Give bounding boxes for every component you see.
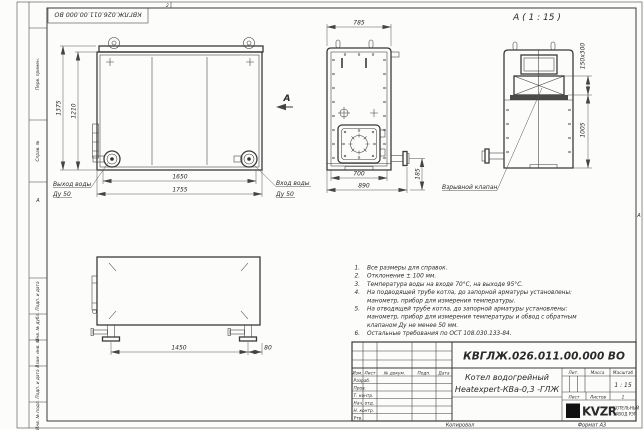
detail-view-a: А ( 1 : 15 ) 150х300 1005 Взрывной клапа… <box>442 13 592 191</box>
format-label: Формат А3 <box>578 423 606 429</box>
front-view: 1375 1210 1650 1755 Выход воды Ду 50 Вхо… <box>52 38 311 199</box>
scale-value: 1 : 15 <box>614 382 631 389</box>
note-num: 6. <box>354 331 360 337</box>
note-text: манометр, прибор для измерения температу… <box>367 298 516 304</box>
dim-valve: 150х300 <box>580 43 587 70</box>
company-logo: KVZR КОТЕЛЬНЫЙ ЗАВОД РЭП <box>566 404 639 419</box>
note-text: На отводящей трубе котла, до запорной ар… <box>367 307 568 313</box>
row-prov: Пров. <box>354 385 367 391</box>
company-name-2: ЗАВОД РЭП <box>613 412 637 417</box>
dim-1210: 1210 <box>71 103 78 118</box>
margin-cell-podp1: Подп. и дата <box>35 281 41 311</box>
col-list: Лист <box>364 371 376 377</box>
col-podp: Подп. <box>417 371 430 377</box>
title-doc-number: КВГЛЖ.026.011.00.000 ВО <box>463 351 625 363</box>
bottom-view: 1450 80 <box>91 257 272 355</box>
row-razrab: Разраб. <box>354 378 371 384</box>
outlet-dn: Ду 50 <box>52 191 71 198</box>
note-text: На подводящей трубе котла, до запорной а… <box>367 290 572 296</box>
footer-labels: Копировал Формат А3 <box>446 423 607 429</box>
dim-1650: 1650 <box>172 174 187 181</box>
title-block: Изм. Лист № докум. Подп. Дата Разраб. Пр… <box>352 342 639 421</box>
bolt-holes <box>333 54 386 159</box>
dim-700: 700 <box>353 171 365 178</box>
note-text: Все размеры для справок. <box>367 266 448 272</box>
inlet-label: Вход воды <box>276 180 310 187</box>
note-num: 4. <box>354 290 360 296</box>
dim-1755: 1755 <box>172 187 187 194</box>
view-direction-arrow: А <box>276 94 293 110</box>
product-name-2: Heatexpert-КВа-0,3 -ГЛЖ <box>455 385 560 394</box>
zone-letter-right: А <box>636 213 641 219</box>
sheet-label: Лист <box>568 394 580 400</box>
lit-label: Лит. <box>568 370 579 376</box>
note-num: 1. <box>354 266 360 272</box>
dim-1005: 1005 <box>580 122 587 137</box>
note-text: Отклонение ± 100 мм. <box>367 274 436 280</box>
copied-label: Копировал <box>446 423 475 429</box>
note-text: клапаном Ду не менее 50 мм. <box>367 323 458 329</box>
zone-number-top: 2 <box>166 3 169 9</box>
margin-stamp-column: Перв. примен. Справ. № Подп. и дата Инв.… <box>29 28 47 430</box>
dim-785: 785 <box>353 20 365 27</box>
scale-label: Масштаб <box>613 370 634 376</box>
row-nachotd: Нач. отд. <box>354 400 375 406</box>
sheets-label: Листов <box>589 394 607 400</box>
dim-1450: 1450 <box>171 345 186 352</box>
margin-cell-perv: Перв. примен. <box>35 58 41 90</box>
mirrored-doc-number-box: КВГЛЖ.026.011.00.000 ВО <box>48 8 148 23</box>
col-data: Дата <box>437 371 449 377</box>
side-view: 785 700 890 185 <box>327 20 425 194</box>
mirrored-doc-number: КВГЛЖ.026.011.00.000 ВО <box>54 11 141 18</box>
logo-mark <box>566 404 580 419</box>
dim-1375: 1375 <box>56 100 63 115</box>
logo-text: KVZR <box>582 405 617 419</box>
view-arrow-letter: А <box>283 94 291 104</box>
margin-cell-sprav: Справ. № <box>35 140 41 161</box>
margin-cell-inv-dubl: Инв. № дубл. <box>35 312 41 341</box>
row-tkontr: Т. контр. <box>354 393 374 399</box>
massa-label: Масса <box>591 370 605 376</box>
drawing-sheet: 2 А А Перв. примен. Справ. № Подп. и дат… <box>0 0 644 430</box>
outlet-label: Выход воды <box>53 181 91 188</box>
sheet-frame: 2 А А <box>17 2 642 428</box>
margin-cell-inv-podl: Инв. № подл. <box>35 400 41 430</box>
note-text: Остальные требования по ОСТ 108.030.133-… <box>367 331 512 337</box>
sheets-value: 1 <box>622 394 625 400</box>
dim-80: 80 <box>264 345 272 352</box>
valve-seat-band <box>510 95 568 100</box>
inlet-dn: Ду 50 <box>275 191 294 198</box>
dim-185: 185 <box>415 168 422 180</box>
col-izm: Изм. <box>352 371 362 377</box>
margin-cell-vzam: Взам. инв. № <box>35 338 41 368</box>
explosion-valve-label: Взрывной клапан <box>442 184 498 191</box>
note-num: 3. <box>354 282 360 288</box>
company-name-1: КОТЕЛЬНЫЙ <box>613 406 639 411</box>
dim-890: 890 <box>358 183 370 190</box>
margin-cell-podp2: Подп. и дата <box>35 369 41 399</box>
note-num: 5. <box>354 307 360 313</box>
note-text: Температура воды на входе 70°С, на выход… <box>367 282 523 288</box>
zone-letter-left: А <box>35 198 40 204</box>
row-nkontr: Н. контр. <box>354 408 375 414</box>
notes-block: 1. Все размеры для справок. 2. Отклонени… <box>354 266 577 338</box>
product-name-1: Котел водогрейный <box>465 373 549 382</box>
detail-title: А ( 1 : 15 ) <box>512 13 561 23</box>
note-num: 2. <box>354 274 360 280</box>
note-text: манометр, прибор для измерения температу… <box>367 315 577 321</box>
col-doc: № докум. <box>383 371 405 377</box>
row-utv: Утв. <box>354 415 363 421</box>
